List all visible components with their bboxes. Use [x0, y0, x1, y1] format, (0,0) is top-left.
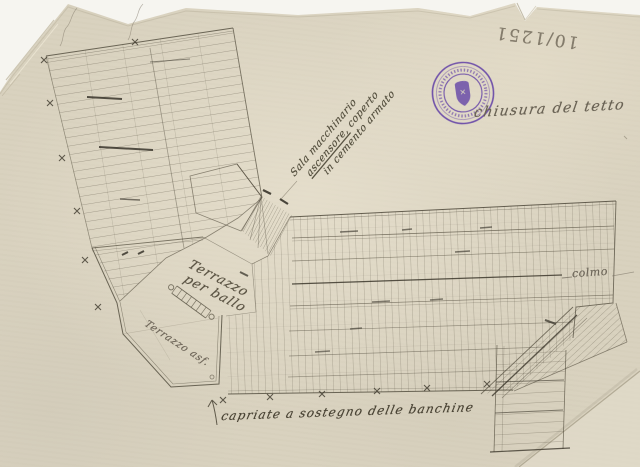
illegible-edge-note [128, 4, 143, 40]
ridge-flourish [612, 272, 634, 276]
ridge-label: colmo [572, 265, 609, 280]
annotation-leader-line [281, 181, 297, 199]
left-wing-roof-hatch [46, 28, 262, 301]
stamp-shield [454, 80, 471, 107]
roof-plan-linework [0, 0, 640, 467]
scanned-roof-plan: 10/1251 chiusura del tetto Sala macchina… [0, 0, 640, 467]
arrow-up-icon [208, 400, 217, 425]
annex-strip [494, 345, 566, 452]
left-wing-area [46, 28, 262, 301]
